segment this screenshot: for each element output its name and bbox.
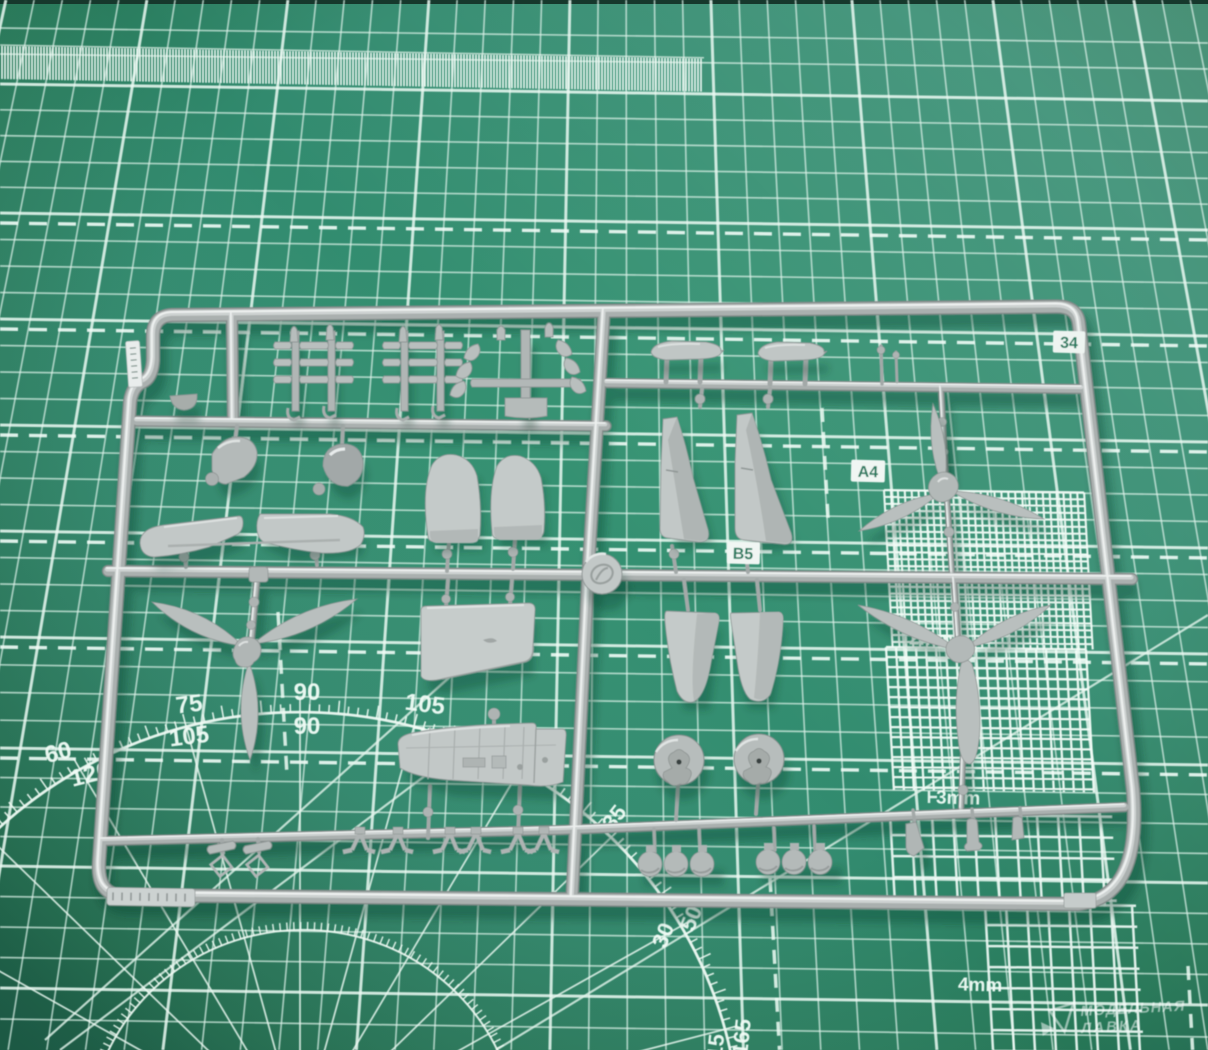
svg-text:A4: A4 <box>858 464 879 482</box>
svg-text:ЛАВКА: ЛАВКА <box>1080 1018 1143 1037</box>
svg-text:105: 105 <box>403 689 446 721</box>
svg-text:165: 165 <box>727 1018 756 1050</box>
svg-text:15: 15 <box>702 1033 729 1050</box>
svg-text:90: 90 <box>294 679 321 706</box>
svg-text:75: 75 <box>174 690 204 720</box>
svg-text:105: 105 <box>168 721 211 753</box>
svg-text:90: 90 <box>294 713 321 740</box>
svg-text:4mm: 4mm <box>958 974 1003 996</box>
svg-text:34: 34 <box>1060 335 1078 352</box>
svg-text:B5: B5 <box>733 546 754 564</box>
